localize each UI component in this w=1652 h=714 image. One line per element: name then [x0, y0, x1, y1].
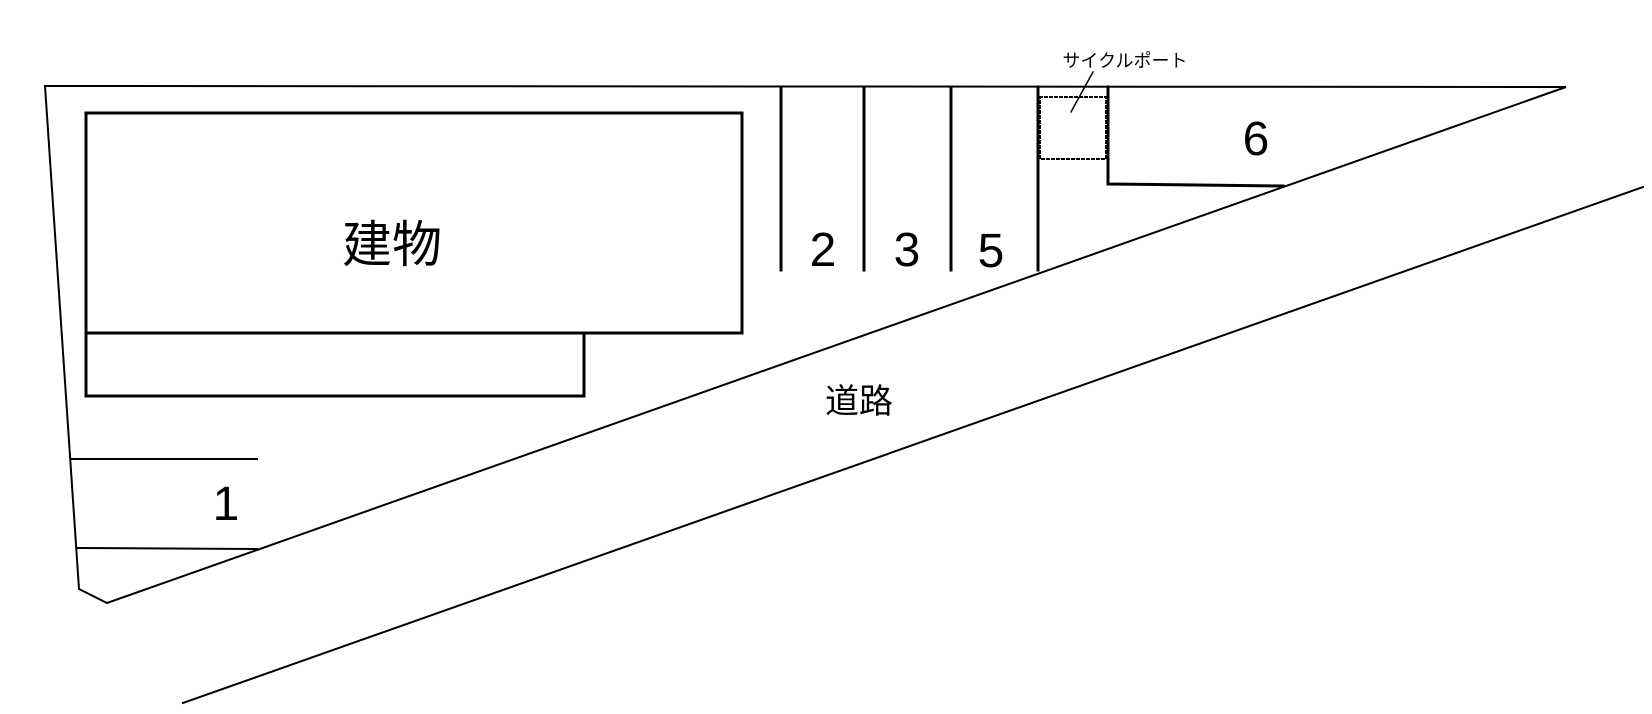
building-label: 建物 [342, 217, 442, 273]
building-annex-outline [86, 333, 584, 396]
cycle-port-label: サイクルポート [1062, 51, 1187, 71]
parking-space-3-label: 3 [894, 224, 921, 277]
parking-space-6-label: 6 [1243, 113, 1270, 166]
cycle-port-dotted-box [1040, 97, 1106, 159]
site-plan-diagram: 建物 道路 サイクルポート 1 2 3 5 6 [0, 0, 1652, 714]
parking-space-1-label: 1 [213, 478, 240, 531]
site-plan-page: 建物 道路 サイクルポート 1 2 3 5 6 [0, 0, 1652, 714]
property-boundary [45, 86, 1566, 603]
parking-space-2-label: 2 [810, 224, 837, 277]
parking-space-1-bottom-line [78, 548, 257, 549]
road-label: 道路 [825, 383, 893, 421]
cycle-port-pointer-line [1071, 72, 1093, 112]
parking-space-5-label: 5 [978, 225, 1005, 278]
